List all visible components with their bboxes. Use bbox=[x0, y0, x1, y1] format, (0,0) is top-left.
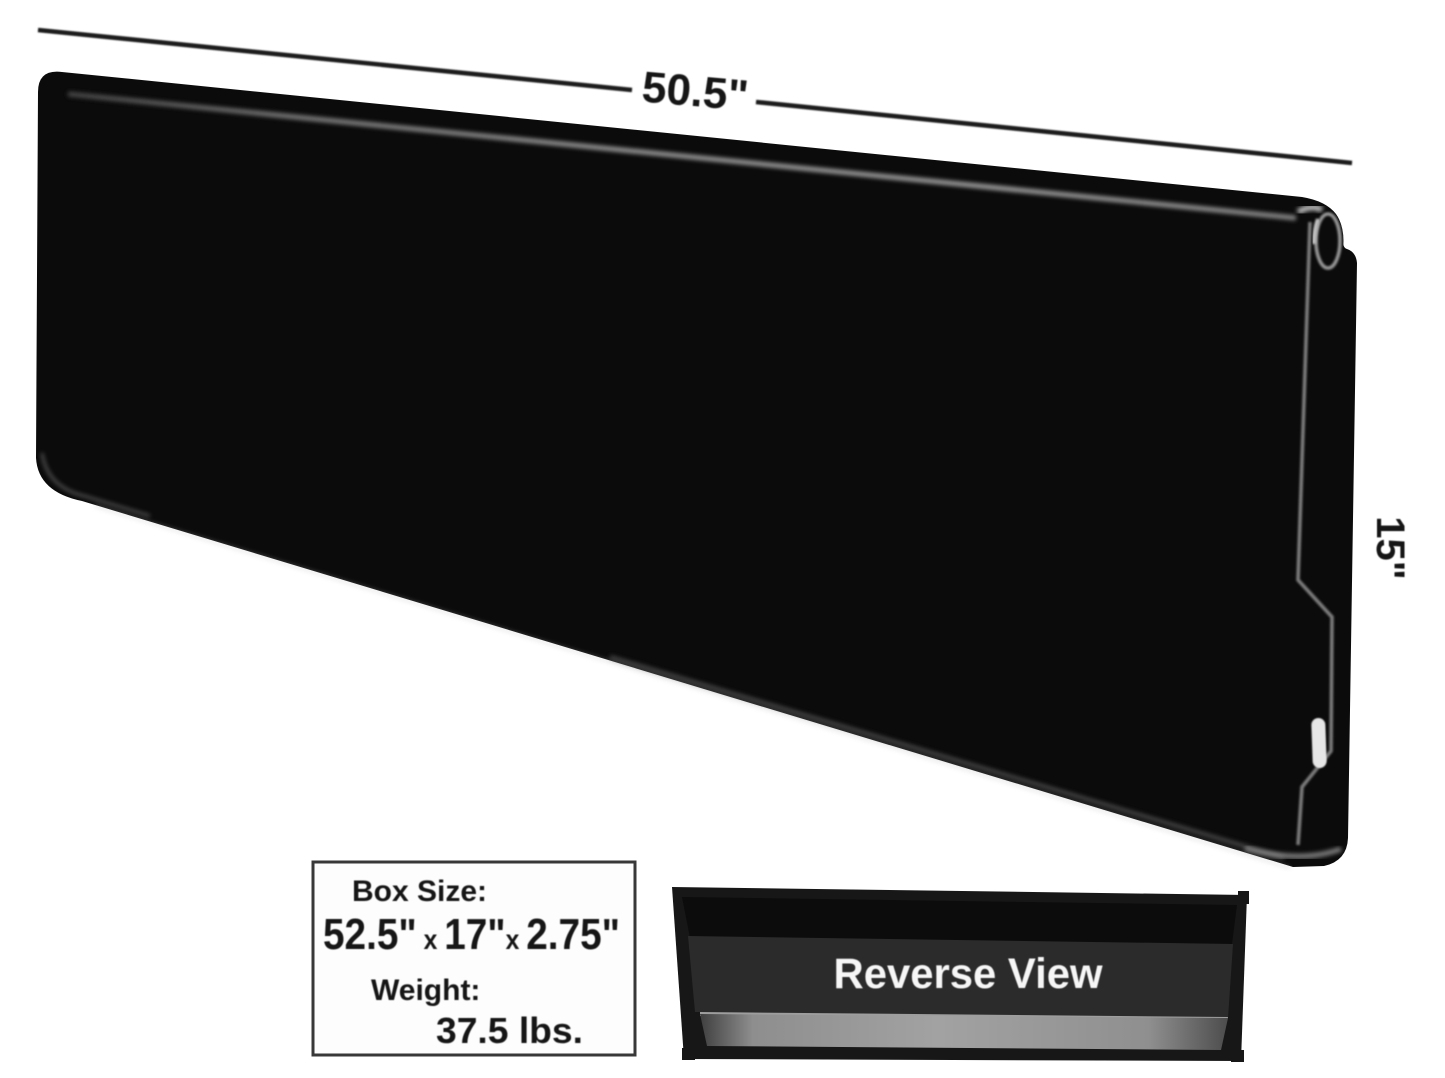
svg-text:37.5 lbs.: 37.5 lbs. bbox=[436, 1010, 583, 1051]
svg-text:52.5" x 17"x 2.75": 52.5" x 17"x 2.75" bbox=[323, 910, 620, 959]
svg-text:15": 15" bbox=[1368, 516, 1412, 579]
svg-text:Weight:: Weight: bbox=[371, 974, 480, 1007]
svg-text:Reverse View: Reverse View bbox=[834, 950, 1104, 998]
svg-text:Box Size:: Box Size: bbox=[352, 875, 487, 908]
svg-text:50.5": 50.5" bbox=[640, 63, 750, 121]
